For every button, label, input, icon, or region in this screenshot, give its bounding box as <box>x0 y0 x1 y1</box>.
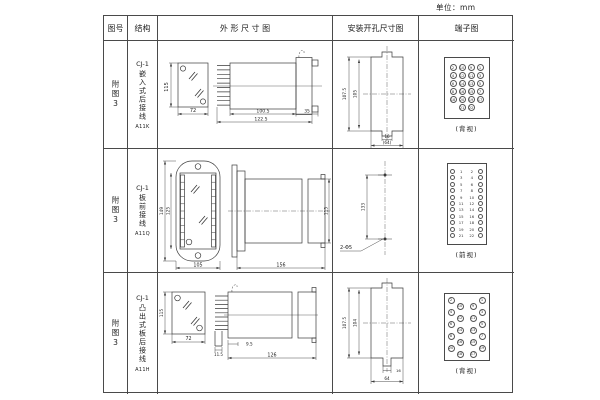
terminal-pin: 2 <box>448 297 455 304</box>
mounting-drawing-a11q: 133 2-Φ5 <box>333 149 418 272</box>
terminal-pin: 3 <box>477 72 484 79</box>
terminal-pin: 7 <box>477 88 484 95</box>
row1-desc-label: 嵌入式后接线 <box>138 70 148 121</box>
terminal-diagram-a11h: 2468201012141618911131517135719 <box>444 293 490 361</box>
dim-label-115: 115 <box>324 207 330 215</box>
dim-label-133: 133 <box>361 203 367 211</box>
terminal-number: 2 <box>468 169 476 174</box>
dim-arrows <box>164 161 330 269</box>
terminal-number: 17 <box>457 220 465 225</box>
dim-label-100-5: 100.5 <box>256 108 269 114</box>
dim-label-104: 104 <box>353 318 358 326</box>
terminal-number: 3 <box>457 175 465 180</box>
terminal-number: 6 <box>468 182 476 187</box>
row2-outline-cell: 149 125 105 156 115 <box>158 149 333 273</box>
dim-label-122-5: 122.5 <box>254 116 267 122</box>
terminal-pin: 11 <box>468 72 475 79</box>
terminal-pin <box>450 227 455 232</box>
terminal-pin <box>478 169 483 174</box>
terminal-pin: 17 <box>470 351 477 358</box>
terminal-pin: 13 <box>468 80 475 87</box>
terminal-pin: 20 <box>448 345 455 352</box>
terminal-pin: 15 <box>470 339 477 346</box>
terminal-pin: 19 <box>468 96 475 103</box>
terminal-number: 21 <box>457 233 465 238</box>
row2-code-label: A11Q <box>135 231 150 237</box>
row1-code-label: A11K <box>135 124 149 130</box>
dim-label-64-paren: (64) <box>383 140 392 145</box>
terminal-pin: 14 <box>457 327 464 334</box>
terminal-pin <box>478 214 483 219</box>
dim-label-16: 16 <box>396 367 401 372</box>
terminal-pin <box>478 233 483 238</box>
terminal-pin: 21 <box>459 104 466 111</box>
terminal-pin <box>478 207 483 212</box>
terminal-pin: 5 <box>479 321 486 328</box>
terminal-row: 2122 <box>448 233 486 238</box>
terminal-pin: 6 <box>448 321 455 328</box>
dim-label-64: 64 <box>384 376 390 381</box>
spec-table: 图号 结构 外 形 尺 寸 图 安装开孔尺寸图 端子图 附图3 CJ-1 嵌入式… <box>103 15 513 393</box>
terminal-number: 19 <box>457 227 465 232</box>
row3-outline-cell: 115 72 11.5 9.5 126 <box>158 273 333 394</box>
mounting-dim-lines <box>340 175 383 251</box>
terminal-pin: 8 <box>450 88 457 95</box>
terminal-pin: 9 <box>468 64 475 71</box>
terminal-pin: 19 <box>479 345 486 352</box>
terminal-pin: 17 <box>477 96 484 103</box>
terminal-row: 34 <box>448 175 486 180</box>
terminal-row: 2122 <box>445 104 489 111</box>
terminal-pin: 12 <box>459 72 466 79</box>
row1-view-label: (背视) <box>455 123 477 133</box>
mounting-drawing-a11k: 107.5 105 16 (64) <box>333 41 418 148</box>
dim-arrows <box>348 57 403 147</box>
col-header-structure-label: 结构 <box>135 23 151 34</box>
unit-label: 单位：mm <box>436 2 476 13</box>
terminal-row: 614135 <box>445 80 489 87</box>
row1-model-label: CJ-1 <box>136 60 149 68</box>
terminal-pin <box>450 220 455 225</box>
terminal-pin: 1 <box>477 64 484 71</box>
terminal-pin: 13 <box>470 327 477 334</box>
terminal-number: 11 <box>457 201 465 206</box>
side-dim-lines <box>237 179 331 270</box>
terminal-pin: 3 <box>479 309 486 316</box>
terminal-pin <box>478 227 483 232</box>
terminal-pin: 4 <box>450 72 457 79</box>
terminal-pin: 18 <box>450 96 457 103</box>
terminal-pin: 1 <box>479 297 486 304</box>
row1-terminal-cell: 21091412113614135816157182019172122 (背视) <box>419 41 514 149</box>
mounting-dim-lines <box>347 288 403 384</box>
dim-label-126: 126 <box>267 352 276 358</box>
dim-arrows <box>348 288 403 383</box>
dim-label-35: 35 <box>304 108 310 114</box>
dim-arrows <box>164 292 316 359</box>
terminal-pin <box>478 188 483 193</box>
row2-view-label: (前视) <box>455 249 477 259</box>
row2-fig-no-label: 附图3 <box>110 196 121 226</box>
terminal-pin: 22 <box>468 104 475 111</box>
terminal-number: 7 <box>457 188 465 193</box>
front-view <box>172 292 205 334</box>
side-view <box>213 50 322 114</box>
row1-fig-no-label: 附图3 <box>110 80 121 110</box>
row3-model-label: CJ-1 <box>136 294 149 302</box>
terminal-pin <box>478 175 483 180</box>
col-header-fig-no-label: 图号 <box>108 23 124 34</box>
terminal-number: 13 <box>457 207 465 212</box>
terminal-pin <box>450 233 455 238</box>
terminal-pin: 11 <box>470 315 477 322</box>
terminal-pin <box>478 182 483 187</box>
terminal-pin: 16 <box>457 339 464 346</box>
col-header-terminal: 端子图 <box>419 16 514 41</box>
terminal-row: 78 <box>448 188 486 193</box>
terminal-row: 21091 <box>445 64 489 71</box>
row3-fig-no: 附图3 <box>104 273 128 394</box>
side-view <box>228 165 330 257</box>
outline-drawing-a11q: 149 125 105 156 115 <box>158 149 332 272</box>
terminal-row: 1112 <box>448 201 486 206</box>
terminal-row: 816157 <box>445 88 489 95</box>
row3-terminal-cell: 2468201012141618911131517135719 (背视) <box>419 273 514 394</box>
terminal-number: 1 <box>457 169 465 174</box>
terminal-row: 1920 <box>448 227 486 232</box>
terminal-number: 15 <box>457 214 465 219</box>
row2-structure: CJ-1 板前接线 A11Q <box>128 149 158 273</box>
dim-label-11-5: 11.5 <box>214 352 223 357</box>
terminal-pin: 6 <box>450 80 457 87</box>
mounting-dim-lines <box>347 57 403 148</box>
terminal-pin <box>450 195 455 200</box>
terminal-number: 12 <box>468 201 476 206</box>
row1-fig-no: 附图3 <box>104 41 128 149</box>
row3-view-label: (背视) <box>455 365 477 375</box>
col-header-mounting: 安装开孔尺寸图 <box>333 16 419 41</box>
terminal-row: 1718 <box>448 220 486 225</box>
terminal-number: 8 <box>468 188 476 193</box>
outline-drawing-a11k: 115 72 100.5 35 122.5 <box>158 41 332 148</box>
terminal-pin: 2 <box>450 64 457 71</box>
terminal-number: 16 <box>468 214 476 219</box>
col-header-mounting-label: 安装开孔尺寸图 <box>348 23 404 34</box>
terminal-number: 18 <box>468 220 476 225</box>
terminal-row: 18201917 <box>445 96 489 103</box>
dim-label-156: 156 <box>276 262 285 268</box>
dim-label-115: 115 <box>159 308 165 316</box>
dim-label-2-phi5: 2-Φ5 <box>340 245 352 251</box>
terminal-pin: 10 <box>459 64 466 71</box>
terminal-row: 12 <box>448 169 486 174</box>
dim-label-107-5: 107.5 <box>342 88 348 101</box>
terminal-pin: 14 <box>459 80 466 87</box>
row3-fig-no-label: 附图3 <box>110 319 121 349</box>
terminal-pin <box>450 188 455 193</box>
row2-fig-no: 附图3 <box>104 149 128 273</box>
center-lines <box>363 46 411 142</box>
side-dim-lines <box>215 340 316 360</box>
terminal-pin <box>450 175 455 180</box>
row3-code-label: A11H <box>135 367 150 373</box>
row3-desc-label: 凸出式板后接线 <box>138 304 148 364</box>
terminal-pin <box>450 169 455 174</box>
terminal-diagram-a11q: 12345678910111213141516171819202122 <box>447 163 487 245</box>
terminal-pin: 9 <box>470 303 477 310</box>
terminal-diagram-a11k: 21091412113614135816157182019172122 <box>444 57 490 119</box>
row3-structure: CJ-1 凸出式板后接线 A11H <box>128 273 158 394</box>
dim-label-105: 105 <box>353 90 359 98</box>
terminal-row: 910 <box>448 195 486 200</box>
front-view <box>176 161 220 261</box>
terminal-pin <box>478 220 483 225</box>
terminal-row: 1516 <box>448 214 486 219</box>
row2-mounting-cell: 133 2-Φ5 <box>333 149 419 273</box>
terminal-number: 22 <box>468 233 476 238</box>
row2-desc-label: 板前接线 <box>138 194 148 228</box>
dim-label-149: 149 <box>159 207 165 215</box>
col-header-fig-no: 图号 <box>104 16 128 41</box>
terminal-row: 412113 <box>445 72 489 79</box>
terminal-pin <box>450 201 455 206</box>
terminal-pin <box>450 214 455 219</box>
col-header-outline-label: 外 形 尺 寸 图 <box>220 23 270 34</box>
terminal-number: 4 <box>468 175 476 180</box>
row1-mounting-cell: 107.5 105 16 (64) <box>333 41 419 149</box>
terminal-pin: 5 <box>477 80 484 87</box>
side-view <box>215 284 318 345</box>
terminal-pin <box>450 182 455 187</box>
terminal-row: 56 <box>448 182 486 187</box>
terminal-pin: 12 <box>457 315 464 322</box>
row1-outline-cell: 115 72 100.5 35 122.5 <box>158 41 333 149</box>
terminal-pin: 10 <box>457 303 464 310</box>
terminal-pin <box>478 195 483 200</box>
dim-label-105: 105 <box>193 262 202 268</box>
col-header-outline: 外 形 尺 寸 图 <box>158 16 333 41</box>
row2-model-label: CJ-1 <box>136 184 149 192</box>
terminal-pin <box>478 201 483 206</box>
outline-drawing-a11h: 115 72 11.5 9.5 126 <box>158 274 332 394</box>
terminal-number: 20 <box>468 227 476 232</box>
col-header-terminal-label: 端子图 <box>455 23 479 34</box>
dim-label-125: 125 <box>166 207 172 215</box>
terminal-pin: 20 <box>459 96 466 103</box>
mounting-drawing-a11h: 107.5 104 16 64 <box>333 274 418 394</box>
terminal-pin: 15 <box>468 88 475 95</box>
dim-label-115: 115 <box>164 82 170 92</box>
terminal-row: 1314 <box>448 207 486 212</box>
terminal-pin: 18 <box>457 351 464 358</box>
terminal-number: 5 <box>457 182 465 187</box>
col-header-structure: 结构 <box>128 16 158 41</box>
dim-label-72: 72 <box>190 108 196 114</box>
dim-label-16: 16 <box>384 134 390 139</box>
terminal-pin <box>450 207 455 212</box>
terminal-number: 10 <box>468 195 476 200</box>
row2-terminal-cell: 12345678910111213141516171819202122 (前视) <box>419 149 514 273</box>
terminal-number: 9 <box>457 195 465 200</box>
front-dim-lines <box>169 63 208 116</box>
terminal-pin: 16 <box>459 88 466 95</box>
terminal-number: 14 <box>468 207 476 212</box>
terminal-pin: 8 <box>448 333 455 340</box>
terminal-pin: 7 <box>479 333 486 340</box>
row1-structure: CJ-1 嵌入式后接线 A11K <box>128 41 158 149</box>
dim-label-9-5: 9.5 <box>246 341 253 346</box>
front-view <box>178 63 208 107</box>
dim-label-107-5: 107.5 <box>342 316 347 328</box>
dim-label-72: 72 <box>185 336 191 342</box>
front-dim-lines <box>163 292 205 344</box>
row3-mounting-cell: 107.5 104 16 64 <box>333 273 419 394</box>
spec-sheet-page: 单位：mm 图号 结构 外 形 尺 寸 图 安装开孔尺寸图 端子图 附图3 CJ… <box>0 0 600 400</box>
terminal-pin: 4 <box>448 309 455 316</box>
